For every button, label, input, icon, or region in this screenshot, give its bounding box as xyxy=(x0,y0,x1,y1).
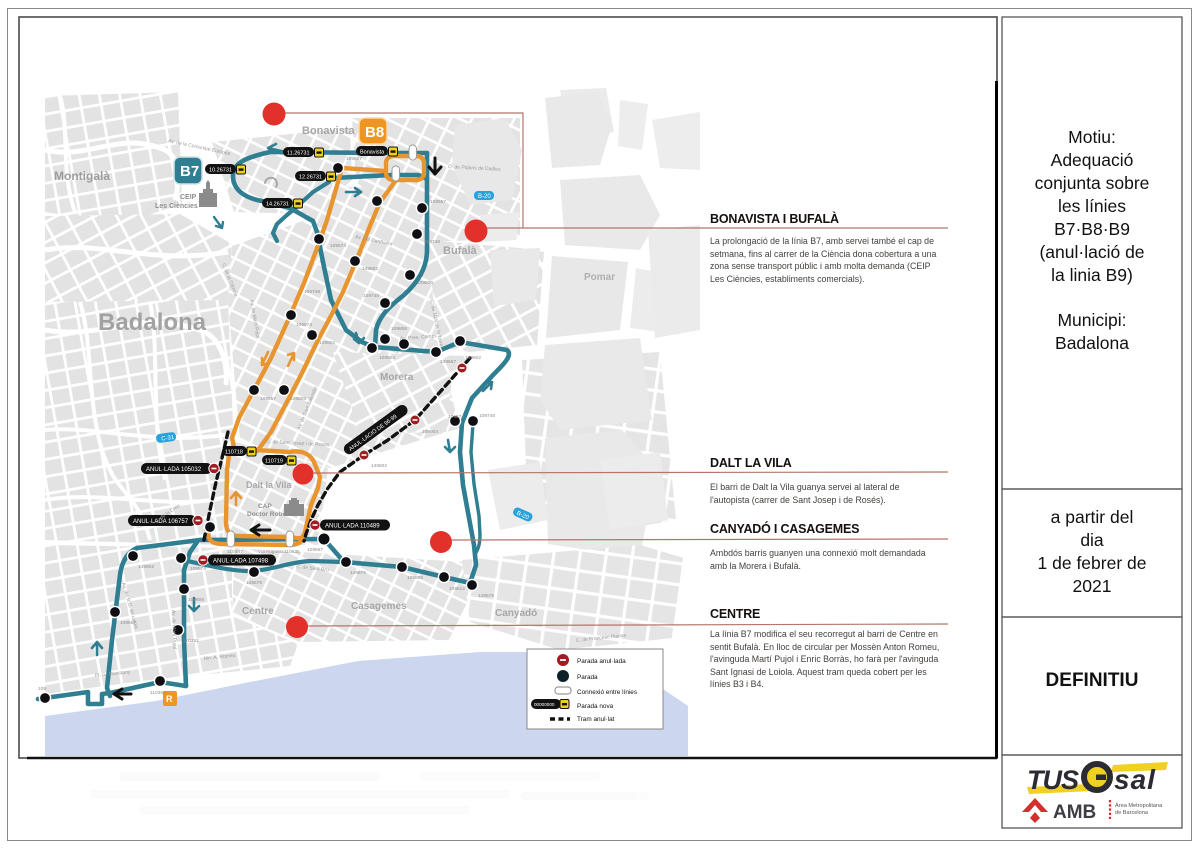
svg-text:14.26731: 14.26731 xyxy=(266,202,289,208)
svg-text:149576: 149576 xyxy=(478,593,494,599)
svg-text:109657: 109657 xyxy=(430,199,446,205)
svg-text:B-20: B-20 xyxy=(478,194,491,200)
svg-text:Parada nova: Parada nova xyxy=(577,703,614,710)
svg-text:109904: 109904 xyxy=(422,429,438,435)
svg-text:Canyadó: Canyadó xyxy=(495,608,537,619)
svg-text:109: 109 xyxy=(38,686,46,692)
svg-text:109748: 109748 xyxy=(304,289,320,295)
svg-text:109748: 109748 xyxy=(479,413,495,419)
svg-text:149602: 149602 xyxy=(371,463,387,469)
svg-text:109657: 109657 xyxy=(440,359,456,365)
svg-text:149602: 149602 xyxy=(319,340,335,346)
svg-text:B8: B8 xyxy=(365,124,384,141)
svg-text:Montigalà: Montigalà xyxy=(54,169,110,183)
svg-text:Bonavista: Bonavista xyxy=(302,125,355,137)
svg-text:Via Augusta: Via Augusta xyxy=(258,549,284,555)
svg-text:sal: sal xyxy=(1114,764,1156,795)
svg-text:Bufalà: Bufalà xyxy=(443,245,478,257)
svg-text:149576: 149576 xyxy=(350,570,366,576)
svg-text:11.26731: 11.26731 xyxy=(287,151,310,157)
svg-text:Àrea Metropolitana: Àrea Metropolitana xyxy=(1115,802,1163,809)
svg-text:109806: 109806 xyxy=(290,396,306,402)
svg-text:Badalona: Badalona xyxy=(98,309,207,336)
svg-text:110487: 110487 xyxy=(227,549,243,555)
svg-text:109904: 109904 xyxy=(379,355,395,361)
svg-text:149602: 149602 xyxy=(465,355,481,361)
svg-text:Morera: Morera xyxy=(380,372,414,383)
svg-text:AMB: AMB xyxy=(1053,802,1096,823)
svg-text:CAP: CAP xyxy=(258,503,272,510)
svg-text:10.26731: 10.26731 xyxy=(209,168,232,174)
svg-text:109574: 109574 xyxy=(330,243,346,249)
svg-text:Pomar: Pomar xyxy=(584,272,615,283)
svg-text:Connexió entre línies: Connexió entre línies xyxy=(577,689,637,696)
svg-text:109574: 109574 xyxy=(448,414,464,420)
svg-text:109657: 109657 xyxy=(307,547,323,553)
svg-text:ANUL·LADA 105032: ANUL·LADA 105032 xyxy=(146,467,202,473)
svg-text:00000000: 00000000 xyxy=(534,702,555,707)
svg-text:109574: 109574 xyxy=(190,566,206,572)
svg-text:109574: 109574 xyxy=(296,322,312,328)
svg-text:109657: 109657 xyxy=(346,156,362,162)
svg-text:Les Ciències: Les Ciències xyxy=(155,203,198,210)
svg-text:TUS: TUS xyxy=(1027,765,1079,795)
svg-text:Bonavista: Bonavista xyxy=(360,150,385,156)
svg-text:109806: 109806 xyxy=(417,280,433,286)
svg-text:109806: 109806 xyxy=(391,326,407,332)
svg-text:Tram anul·lat: Tram anul·lat xyxy=(577,716,615,723)
svg-text:ANUL·LADA 107498: ANUL·LADA 107498 xyxy=(213,559,269,565)
svg-text:149602: 149602 xyxy=(362,266,378,272)
svg-text:Dalt la Vila: Dalt la Vila xyxy=(246,480,292,490)
svg-text:de Barcelona: de Barcelona xyxy=(1115,810,1149,816)
svg-text:110718: 110718 xyxy=(225,450,243,456)
svg-text:Casagemes: Casagemes xyxy=(351,601,407,612)
svg-text:109806: 109806 xyxy=(407,575,423,581)
svg-text:12.26731: 12.26731 xyxy=(299,175,322,181)
svg-text:110352: 110352 xyxy=(183,638,199,644)
svg-text:B7: B7 xyxy=(180,163,199,180)
svg-text:109748: 109748 xyxy=(363,293,379,299)
svg-text:110635: 110635 xyxy=(284,549,300,555)
svg-text:109806: 109806 xyxy=(188,597,204,603)
svg-text:Parada: Parada xyxy=(577,674,598,681)
svg-text:109657: 109657 xyxy=(260,396,276,402)
svg-text:109748: 109748 xyxy=(424,239,440,245)
svg-text:CEIP: CEIP xyxy=(180,194,197,201)
svg-text:110366: 110366 xyxy=(150,690,166,696)
svg-text:149602: 149602 xyxy=(138,564,154,570)
svg-text:Doctor Robert: Doctor Robert xyxy=(247,511,292,518)
svg-text:Centre: Centre xyxy=(242,606,274,617)
svg-text:ANUL·LADA 110489: ANUL·LADA 110489 xyxy=(325,524,380,530)
svg-text:110719: 110719 xyxy=(265,459,283,465)
svg-text:109612: 109612 xyxy=(449,586,465,592)
svg-text:149576: 149576 xyxy=(246,580,262,586)
svg-text:Parada anul·lada: Parada anul·lada xyxy=(577,658,626,665)
svg-text:R: R xyxy=(166,694,173,704)
